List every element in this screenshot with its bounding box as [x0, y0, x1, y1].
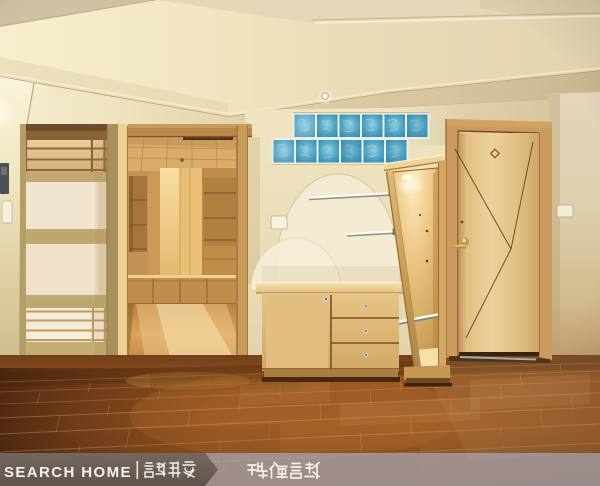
svg-text:SEARCH HOME: SEARCH HOME — [4, 464, 132, 481]
